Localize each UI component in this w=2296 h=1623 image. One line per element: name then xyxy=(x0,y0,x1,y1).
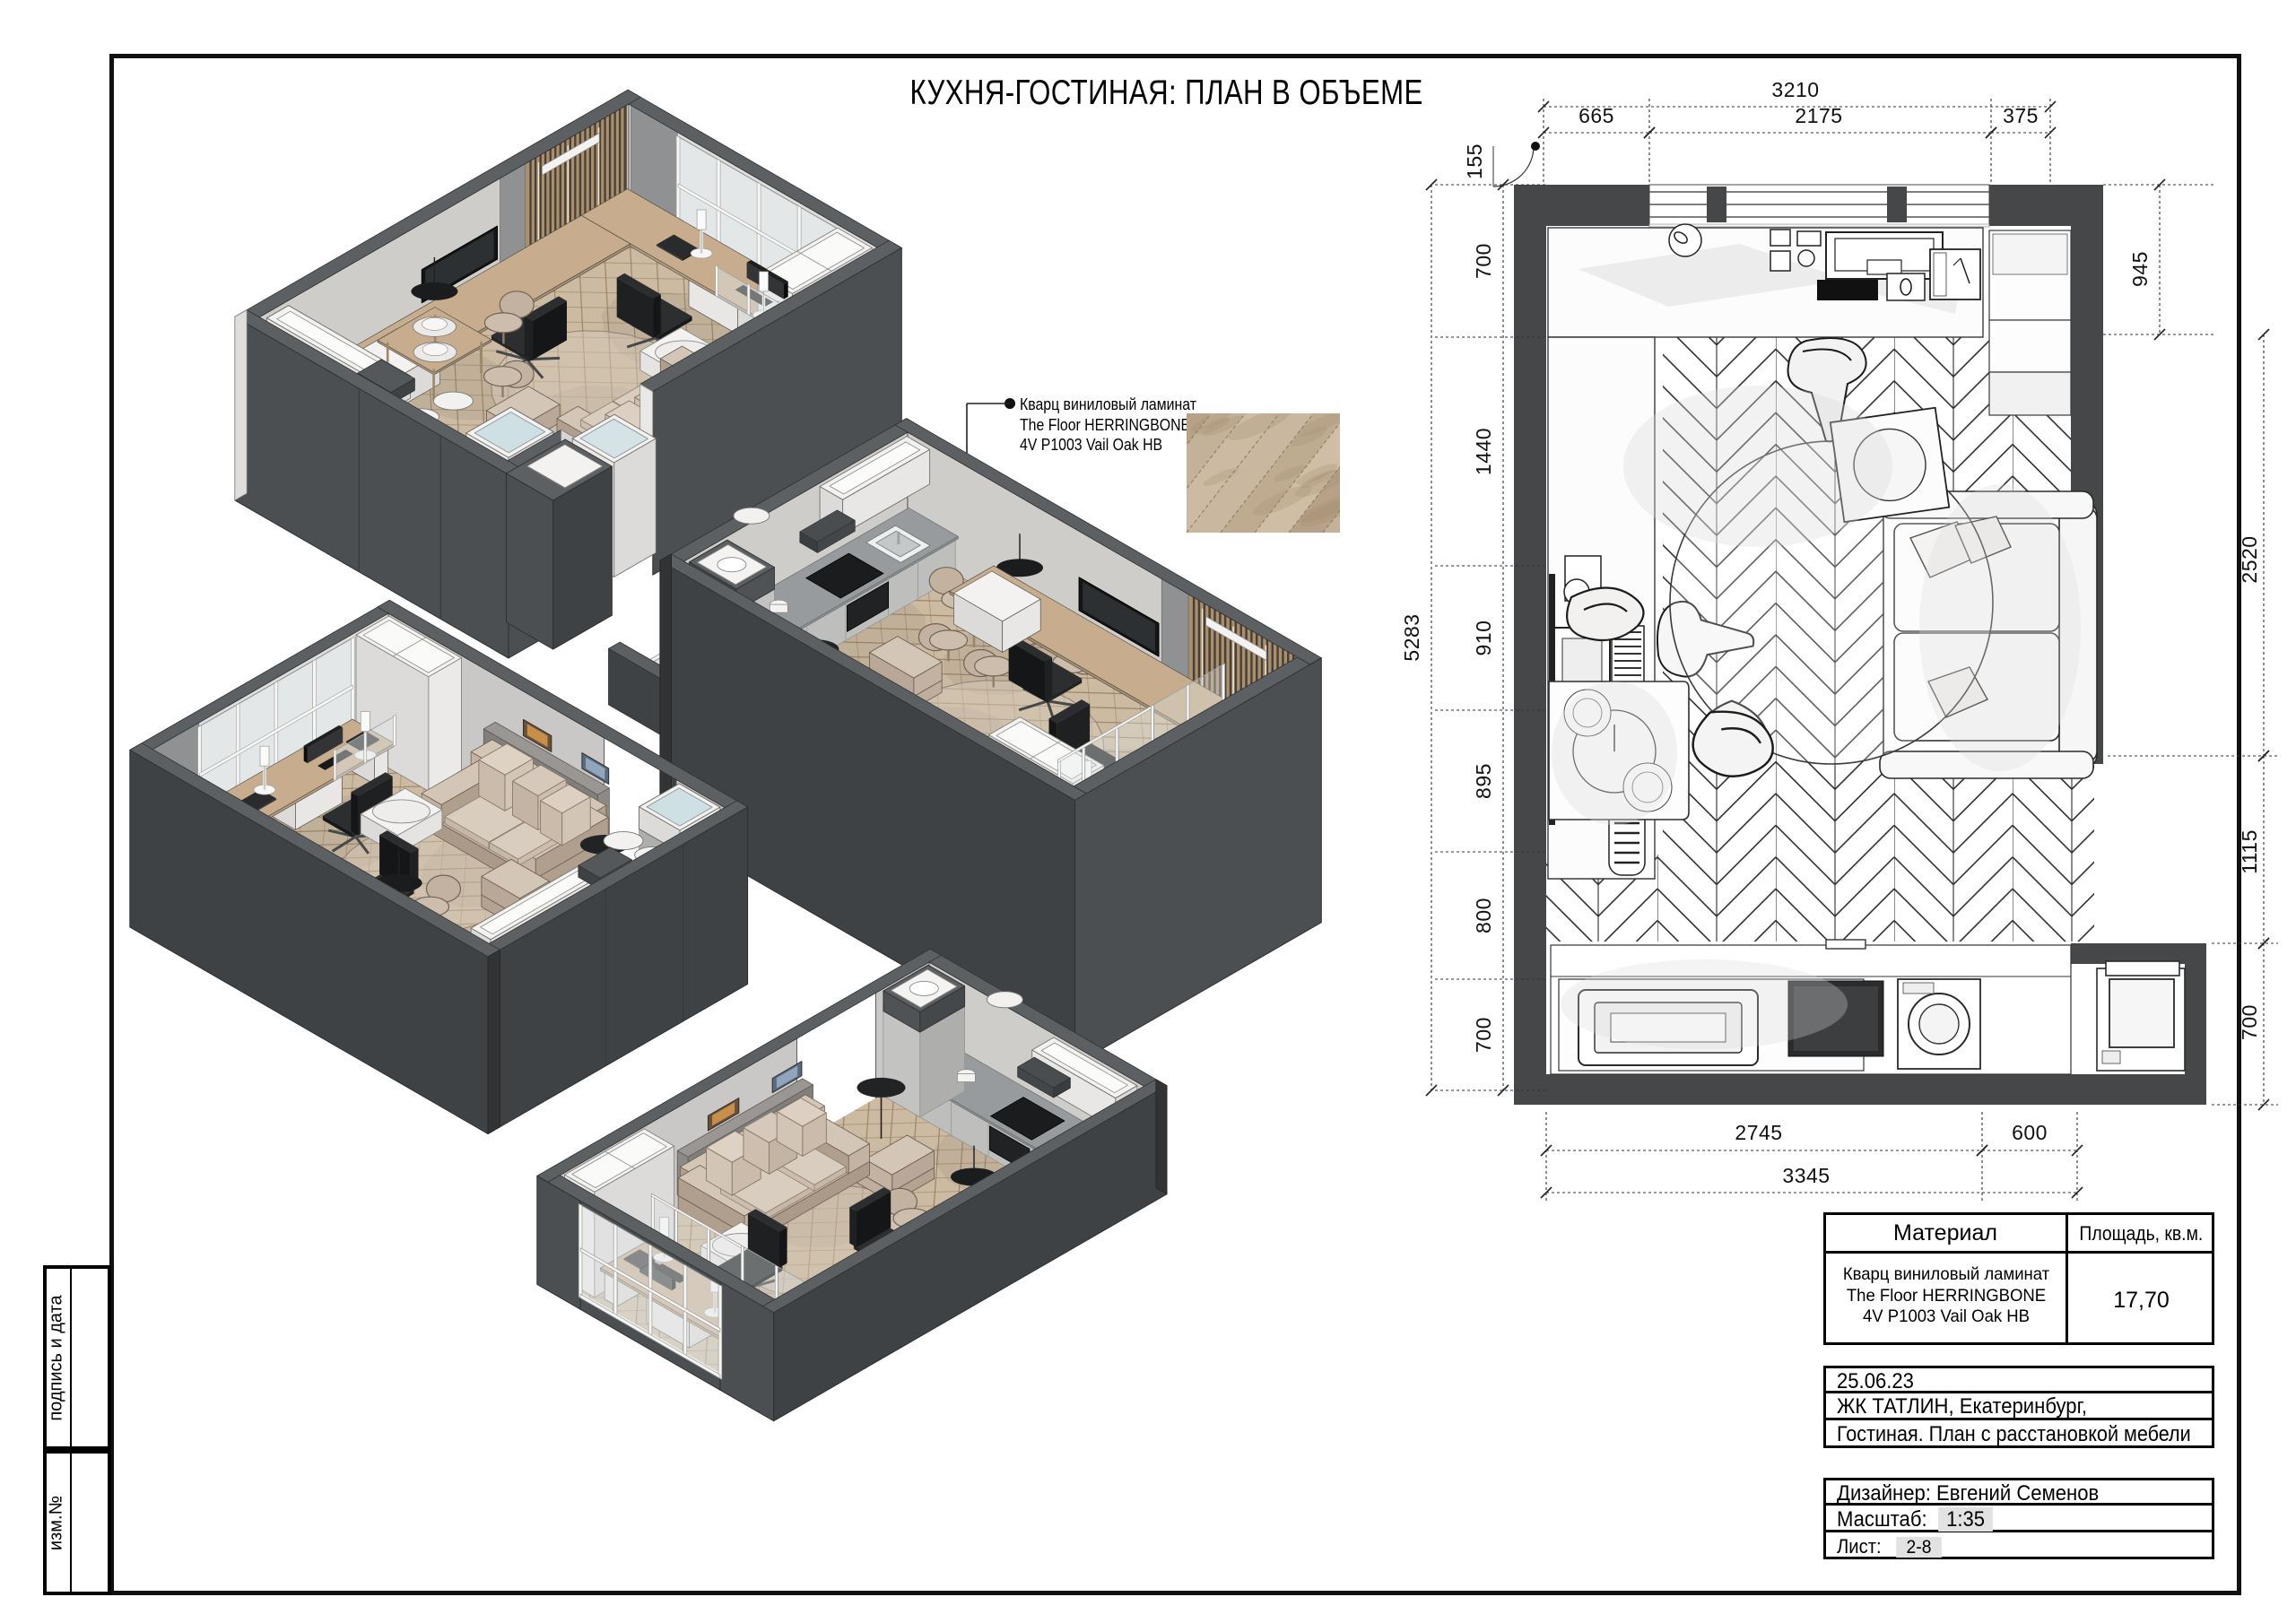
svg-text:700: 700 xyxy=(2238,1004,2261,1040)
svg-text:700: 700 xyxy=(1472,1017,1495,1053)
svg-text:5283: 5283 xyxy=(1400,613,1423,661)
svg-text:3210: 3210 xyxy=(1771,78,1819,101)
svg-text:1115: 1115 xyxy=(2238,829,2261,874)
svg-text:700: 700 xyxy=(1472,243,1495,279)
svg-text:2175: 2175 xyxy=(1795,104,1842,127)
svg-text:2745: 2745 xyxy=(1735,1121,1782,1144)
svg-text:895: 895 xyxy=(1472,763,1495,799)
svg-text:2520: 2520 xyxy=(2238,535,2261,583)
svg-text:155: 155 xyxy=(1463,143,1486,179)
svg-text:375: 375 xyxy=(2003,104,2039,127)
svg-text:3345: 3345 xyxy=(1782,1164,1830,1187)
svg-text:665: 665 xyxy=(1578,104,1614,127)
svg-text:945: 945 xyxy=(2128,251,2152,287)
svg-text:600: 600 xyxy=(2012,1121,2048,1144)
svg-text:1440: 1440 xyxy=(1472,428,1495,475)
svg-text:800: 800 xyxy=(1472,898,1495,933)
svg-text:910: 910 xyxy=(1472,621,1495,656)
